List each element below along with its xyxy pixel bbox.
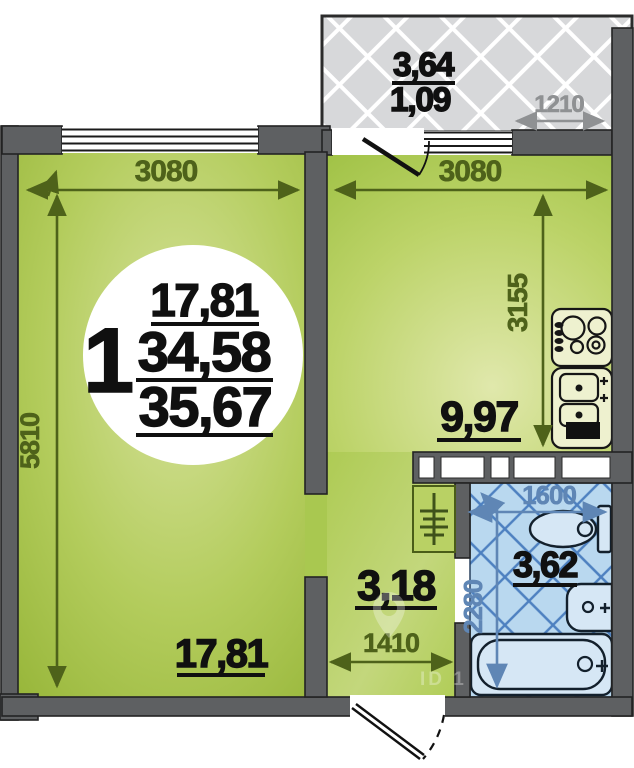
floorplan-page: 3080 5810 3080 3155 1410 1210 1600 2280 …	[0, 0, 634, 768]
bathtub	[471, 634, 612, 695]
bathroom-height-dim: 2280	[458, 580, 488, 634]
stove	[552, 309, 612, 366]
living-window	[62, 127, 258, 153]
bathroom-area: 3,62	[513, 544, 578, 585]
bathroom-width-dim: 1600	[522, 480, 576, 510]
entrance-door	[350, 695, 445, 759]
balcony-width-dim: 1210	[534, 91, 584, 118]
floorplan-svg: 3080 5810 3080 3155 1410 1210 1600 2280 …	[0, 0, 634, 768]
wall-niches	[419, 457, 610, 478]
living-height-dim: 5810	[15, 413, 45, 469]
kitchen-area: 9,97	[440, 393, 518, 441]
badge-living-area: 17,81	[150, 274, 259, 326]
kitchen-height-dim: 3155	[502, 273, 533, 332]
unit-badge: 1 17,81 34,58 35,67	[83, 245, 303, 465]
balcony-area-full: 3,64	[393, 46, 455, 84]
badge-total-area: 35,67	[139, 375, 272, 438]
living-doorway	[305, 494, 327, 577]
living-area: 17,81	[175, 632, 269, 676]
kitchen-sink	[552, 368, 612, 448]
kitchen-window	[424, 131, 512, 154]
washbasin	[567, 584, 612, 631]
badge-room-count: 1	[83, 310, 133, 412]
badge-area-no-balcony: 34,58	[138, 320, 271, 383]
balcony-area-reduced: 1,09	[390, 81, 451, 119]
kitchen-width-dim: 3080	[439, 155, 502, 188]
living-width-dim: 3080	[135, 155, 198, 188]
watermark-id-text: ID 1	[420, 669, 467, 690]
balcony-floor	[322, 16, 632, 132]
wardrobe	[413, 486, 455, 552]
